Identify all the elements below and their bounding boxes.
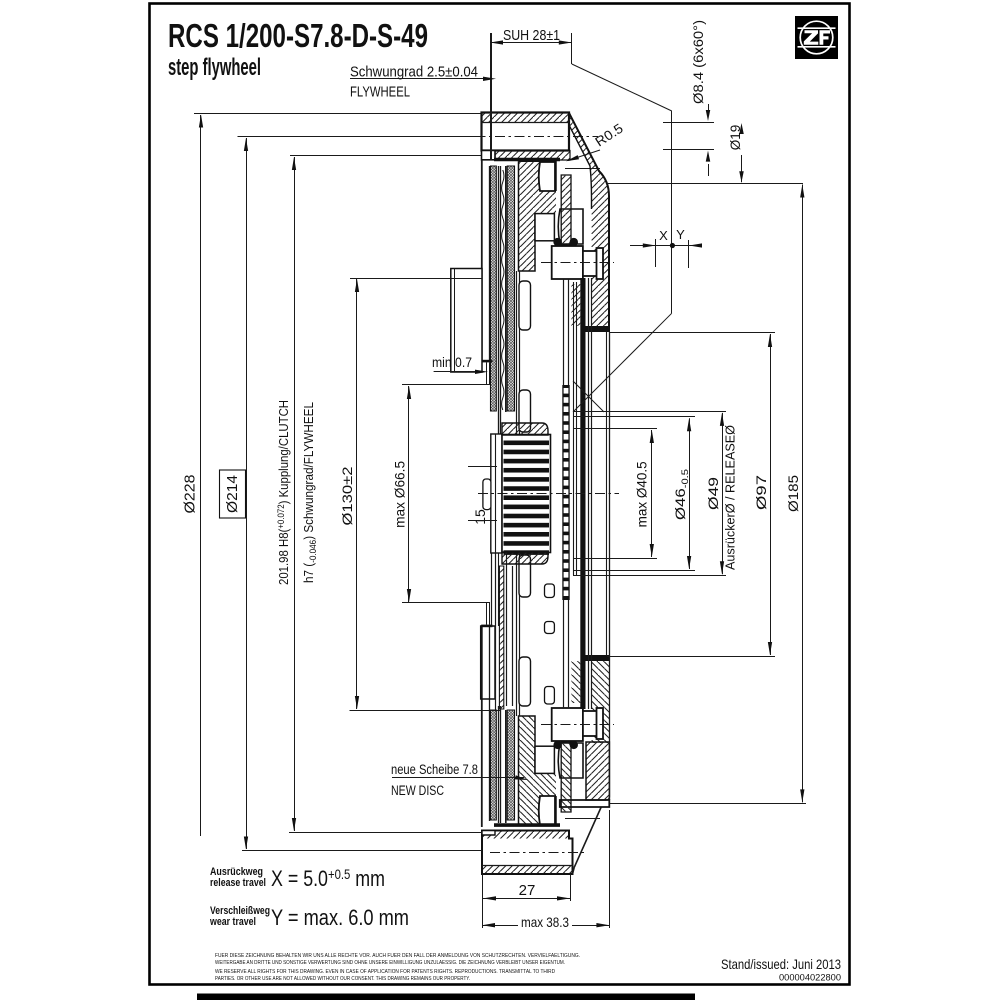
svg-text:max Ø66.5: max Ø66.5 <box>393 461 408 528</box>
svg-text:X: X <box>659 228 668 243</box>
svg-text:neue Scheibe 7.8: neue Scheibe 7.8 <box>391 762 478 777</box>
svg-text:PARTIES. OR OTHER USE ARE NOT: PARTIES. OR OTHER USE ARE NOT ALLOWED WI… <box>215 976 470 982</box>
svg-text:step flywheel: step flywheel <box>168 54 261 81</box>
svg-text:min 0.7: min 0.7 <box>432 355 472 370</box>
svg-text:WE RESERVE ALL RIGHTS FOR THIS: WE RESERVE ALL RIGHTS FOR THIS DRAWING. … <box>215 969 555 975</box>
svg-text:Schwungrad 2.5±0.04: Schwungrad 2.5±0.04 <box>350 64 478 81</box>
svg-text:Ø185: Ø185 <box>786 475 801 512</box>
svg-text:FUER DIESE ZEICHNUNG BEHALTEN: FUER DIESE ZEICHNUNG BEHALTEN WIR UNS AL… <box>215 953 580 959</box>
svg-text:000004022800: 000004022800 <box>779 973 841 984</box>
svg-text:wear travel: wear travel <box>209 916 256 928</box>
svg-text:Stand/issued: Juni 2013: Stand/issued: Juni 2013 <box>721 956 841 972</box>
svg-text:Ø8.4 (6x60°): Ø8.4 (6x60°) <box>691 20 706 104</box>
svg-text:Y = max. 6.0 mm: Y = max. 6.0 mm <box>271 905 409 930</box>
svg-text:RCS 1/200-S7.8-D-S-49: RCS 1/200-S7.8-D-S-49 <box>168 17 428 54</box>
svg-text:FLYWHEEL: FLYWHEEL <box>350 84 410 101</box>
svg-text:Ø214: Ø214 <box>225 475 241 513</box>
svg-text:Y: Y <box>676 227 685 242</box>
svg-text:Ø130±2: Ø130±2 <box>340 467 355 526</box>
svg-text:Ø49: Ø49 <box>706 477 721 510</box>
svg-text:Ø97: Ø97 <box>754 475 769 510</box>
svg-text:WEITERGABE AN DRITTE UND SONST: WEITERGABE AN DRITTE UND SONSTIGE VERWER… <box>215 960 565 966</box>
svg-text:SUH 28±1: SUH 28±1 <box>503 27 560 44</box>
svg-text:15: 15 <box>472 509 488 525</box>
svg-text:NEW DISC: NEW DISC <box>391 783 444 798</box>
svg-text:AusrückerØ / RELEASEØ: AusrückerØ / RELEASEØ <box>724 425 738 570</box>
svg-text:release travel: release travel <box>210 877 266 889</box>
svg-text:max Ø40.5: max Ø40.5 <box>635 461 650 527</box>
svg-text:Ø228: Ø228 <box>183 475 199 514</box>
svg-text:max 38.3: max 38.3 <box>521 914 569 930</box>
svg-text:201.98 H8(+0.072) Kupplung/CLU: 201.98 H8(+0.072) Kupplung/CLUTCH <box>276 400 291 585</box>
svg-text:27: 27 <box>519 882 536 899</box>
